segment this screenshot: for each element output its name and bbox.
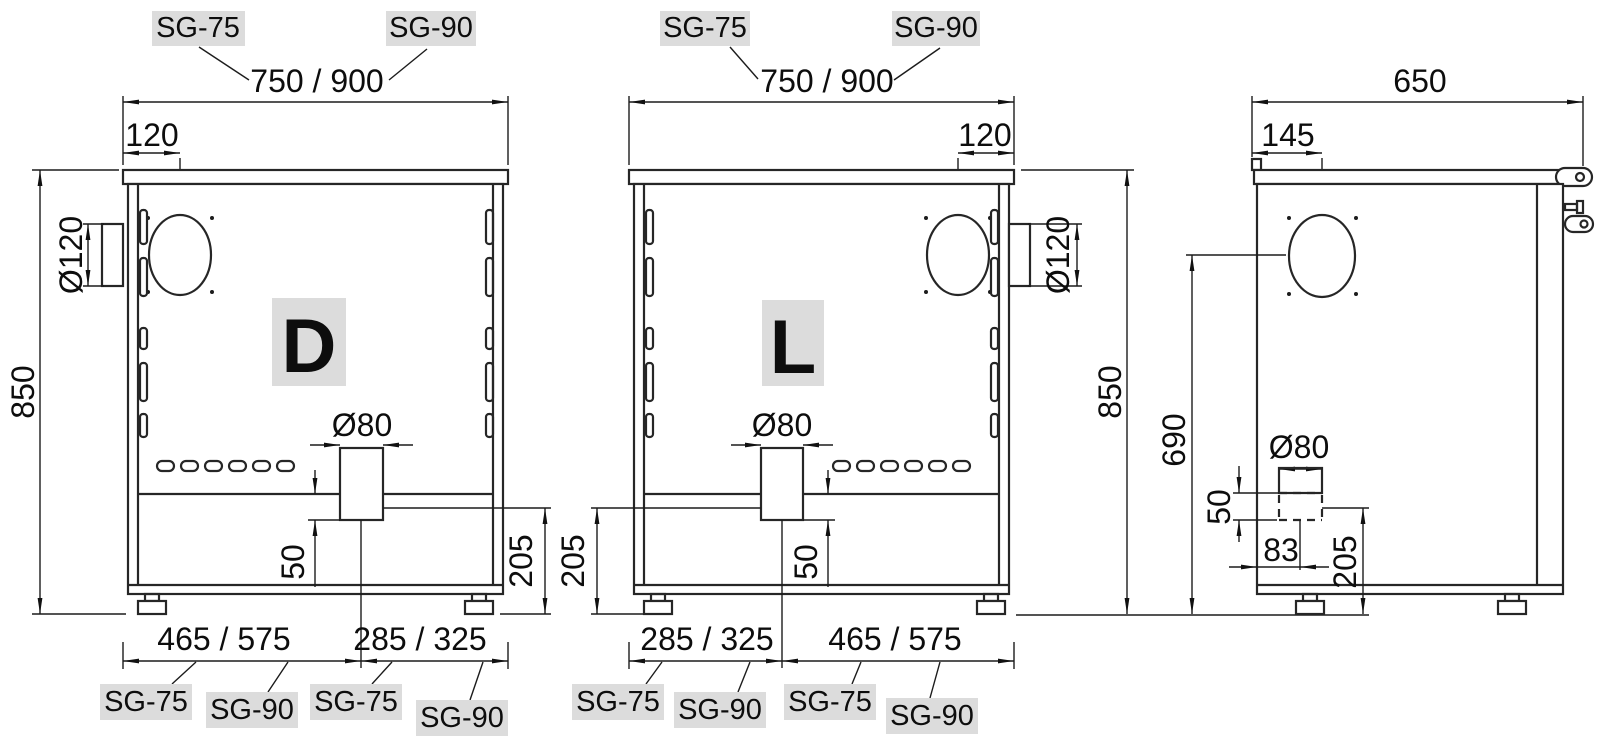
dim-bottom: 465 / 575 285 / 325 [123,621,508,669]
dim-text: 650 [1393,63,1446,99]
leader-line [646,662,662,684]
dim-text: Ø120 [53,216,89,294]
dim-text: 750 / 900 [760,63,893,99]
drawing-canvas: SG-75 SG-90 750 / 900 120 [0,0,1600,741]
adjustable-foot-right [1498,594,1526,614]
model-label-sg90: SG-90 [416,700,508,736]
adjustable-foot-left [1296,594,1324,614]
leader-line [389,49,427,80]
flue-hole [1289,215,1355,297]
dim-bottom: 285 / 325 465 / 575 [629,621,1014,669]
screw-dot [924,290,928,294]
panel-front-d: SG-75 SG-90 750 / 900 120 [5,11,551,736]
model-label-text: SG-90 [894,12,978,44]
variant-badge: L [762,300,824,390]
dim-text: 50 [275,544,311,580]
bonding-terminal [1565,201,1593,232]
leader-line [738,662,750,692]
dim-text: 750 / 900 [250,63,383,99]
model-label-sg75: SG-75 [152,11,245,46]
dim-width: 750 / 900 [629,63,1014,165]
variant-badge: D [272,298,346,389]
dim-text: 850 [1092,365,1128,418]
dim-text: 690 [1156,413,1192,466]
dim-text: 50 [1201,489,1237,525]
dim-text: 120 [125,117,178,153]
flue-stub [1009,224,1030,286]
dim-flue-diameter: Ø120 [1028,216,1082,294]
dim-width: 750 / 900 [123,63,508,165]
leader-line [470,662,483,700]
dim-text: 285 / 325 [353,621,486,657]
screw-dot [1354,292,1358,296]
adjustable-foot-left [138,594,166,614]
badge-letter: D [282,304,337,389]
model-label-sg75: SG-75 [660,11,750,46]
model-label-sg75: SG-75 [310,684,402,720]
screw-dot [1354,216,1358,220]
dim-text: Ø120 [1040,216,1076,294]
dim-text: 285 / 325 [640,621,773,657]
dim-text: Ø80 [332,407,392,443]
model-label-text: SG-90 [389,12,473,44]
duct-outlet [340,448,383,520]
leader-line [268,662,288,692]
leader-line [730,47,758,79]
model-label-text: SG-75 [663,12,747,44]
dim-text: 205 [555,534,591,587]
flue-hole [149,215,211,295]
model-label-sg75: SG-75 [784,684,876,720]
model-label-text: SG-90 [210,694,294,726]
dim-text: 83 [1263,532,1299,568]
screw-dot [1287,292,1291,296]
model-label-text: SG-75 [156,12,240,44]
worktop-back-lip [1252,159,1261,170]
adjustable-foot-left [644,594,672,614]
technical-drawing: SG-75 SG-90 750 / 900 120 [0,0,1600,741]
model-label-text: SG-75 [314,686,398,718]
dim-text: Ø80 [752,407,812,443]
screw-dot [1287,216,1291,220]
model-label-text: SG-90 [678,694,762,726]
worktop [629,170,1014,184]
dim-text: 205 [1327,535,1363,588]
dim-text: 145 [1261,117,1314,153]
dim-text: 465 / 575 [157,621,290,657]
model-label-text: SG-75 [576,686,660,718]
model-label-sg75: SG-75 [572,684,664,720]
adjustable-foot-right [977,594,1005,614]
leader-line [930,662,940,698]
model-label-sg90: SG-90 [892,11,980,46]
screw-dot [924,216,928,220]
leader-line [199,47,249,80]
worktop [1254,170,1566,184]
badge-letter: L [770,305,816,390]
duct-outlet [761,448,803,520]
leader-line [852,662,861,684]
model-label-sg90: SG-90 [206,692,298,728]
flue-stub [102,224,123,286]
dim-text: 50 [788,544,824,580]
model-label-sg75: SG-75 [100,684,192,720]
model-label-text: SG-75 [104,686,188,718]
dim-text: 205 [503,534,539,587]
panel-front-l: SG-75 SG-90 750 / 900 120 [555,11,1134,734]
leader-line [172,662,196,684]
flue-hole [927,215,989,295]
model-label-sg90: SG-90 [386,11,476,46]
model-label-sg90: SG-90 [674,692,766,728]
adjustable-foot-right [465,594,493,614]
dim-flue-diameter: Ø120 [53,216,104,294]
panel-side: 650 145 [1016,63,1593,615]
dim-text: 850 [5,365,41,418]
dim-text: 120 [958,117,1011,153]
model-label-text: SG-90 [890,700,974,732]
model-label-text: SG-75 [788,686,872,718]
worktop [123,170,508,184]
screw-dot [210,290,214,294]
model-label-sg90: SG-90 [886,698,978,734]
leader-line [894,48,940,80]
dim-text: 465 / 575 [828,621,961,657]
screw-dot [210,216,214,220]
model-label-text: SG-90 [420,702,504,734]
dim-duct-diameter: Ø80 [1269,429,1329,469]
dim-text: Ø80 [1269,429,1329,465]
leader-line [372,662,392,684]
